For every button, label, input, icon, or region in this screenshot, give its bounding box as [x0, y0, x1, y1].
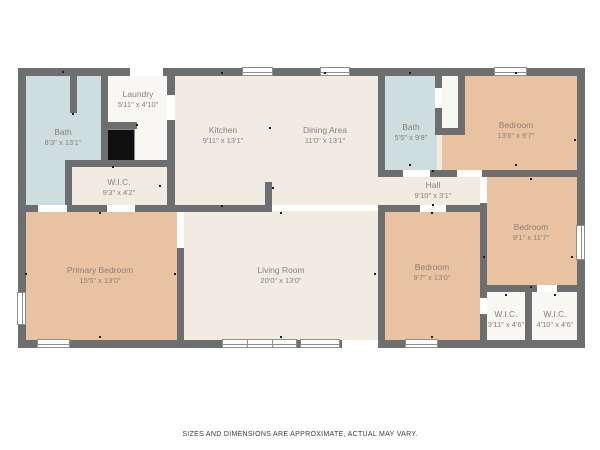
floorplan-page: Bath8'3" x 13'1"Laundry5'11" x 4'10"W.I.… [0, 0, 600, 450]
dimension-tick [409, 72, 411, 74]
window-mullion [247, 340, 248, 347]
door-opening [177, 212, 184, 248]
dimension-tick [99, 336, 101, 338]
window-sill-line [22, 293, 23, 324]
door-opening [457, 170, 482, 177]
door-opening [167, 95, 175, 120]
door-opening [537, 285, 557, 292]
room-floor-bedroom-mid-right [487, 177, 577, 292]
wall-segment [577, 68, 585, 348]
window-sill-line [495, 72, 526, 73]
window-sill-line [406, 344, 437, 345]
wall-segment [70, 76, 77, 113]
dimension-tick [374, 273, 376, 275]
window [17, 292, 26, 325]
window-sill-line [223, 344, 296, 345]
window [494, 67, 527, 76]
dimension-tick [574, 139, 576, 141]
dimension-tick [221, 72, 223, 74]
wall-segment [378, 76, 385, 177]
dimension-tick [269, 127, 271, 129]
door-opening [480, 177, 487, 203]
door-opening [480, 298, 487, 314]
wall-segment [177, 248, 184, 341]
dimension-tick [99, 212, 101, 214]
dimension-tick [409, 164, 411, 166]
window-mullion [272, 340, 273, 347]
window [37, 339, 70, 348]
window [300, 339, 340, 348]
dimension-tick [25, 273, 27, 275]
dimension-tick [432, 170, 434, 172]
door-opening [435, 88, 442, 108]
window-sill-line [243, 72, 272, 73]
dimension-tick [432, 204, 434, 206]
door-opening [272, 205, 378, 211]
dimension-tick [280, 212, 282, 214]
window-sill-line [38, 344, 69, 345]
dimension-tick [272, 187, 274, 189]
dimension-tick [554, 294, 556, 296]
dimension-tick [159, 185, 161, 187]
window [242, 67, 273, 76]
dimension-tick [505, 294, 507, 296]
room-floor-bedroom-bottom [385, 212, 480, 341]
dimension-tick [324, 72, 326, 74]
room-floor-primary-bedroom [26, 212, 177, 341]
door-opening [342, 340, 378, 348]
dimension-tick [221, 205, 223, 207]
dimension-tick [515, 72, 517, 74]
wall-segment [378, 205, 385, 341]
dimension-tick [62, 71, 64, 73]
disclaimer-text: SIZES AND DIMENSIONS ARE APPROXIMATE, AC… [0, 431, 600, 438]
wall-segment [265, 182, 272, 212]
wall-segment [435, 128, 465, 135]
dimension-tick [530, 286, 532, 288]
room-floor-closet-top-right [442, 76, 458, 135]
door-opening [403, 170, 430, 177]
wall-segment [480, 203, 487, 341]
room-floor-bath-center [385, 76, 437, 170]
window [222, 339, 297, 348]
dimension-tick [530, 178, 532, 180]
floor-plan: Bath8'3" x 13'1"Laundry5'11" x 4'10"W.I.… [0, 0, 600, 450]
wall-segment [101, 122, 137, 129]
chimney [107, 129, 135, 162]
wall-segment [458, 76, 465, 135]
wall-segment [525, 292, 532, 341]
dimension-tick [431, 212, 433, 214]
room-floor-wic-right [532, 292, 577, 341]
dimension-tick [515, 164, 517, 166]
dimension-tick [431, 336, 433, 338]
door-opening [130, 68, 163, 76]
window-sill-line [581, 226, 582, 259]
dimension-tick [571, 256, 573, 258]
window [576, 225, 585, 260]
dimension-tick [112, 166, 114, 168]
dimension-tick [72, 113, 74, 115]
dimension-tick [280, 336, 282, 338]
dimension-tick [483, 256, 485, 258]
door-opening [38, 205, 67, 212]
dimension-tick [136, 124, 138, 126]
window-sill-line [301, 344, 339, 345]
wall-segment [480, 285, 577, 292]
dimension-tick [174, 273, 176, 275]
room-floor-wic-left [487, 292, 525, 341]
door-opening [107, 205, 135, 212]
window [405, 339, 438, 348]
door-opening [420, 205, 446, 212]
wall-segment [65, 160, 167, 167]
